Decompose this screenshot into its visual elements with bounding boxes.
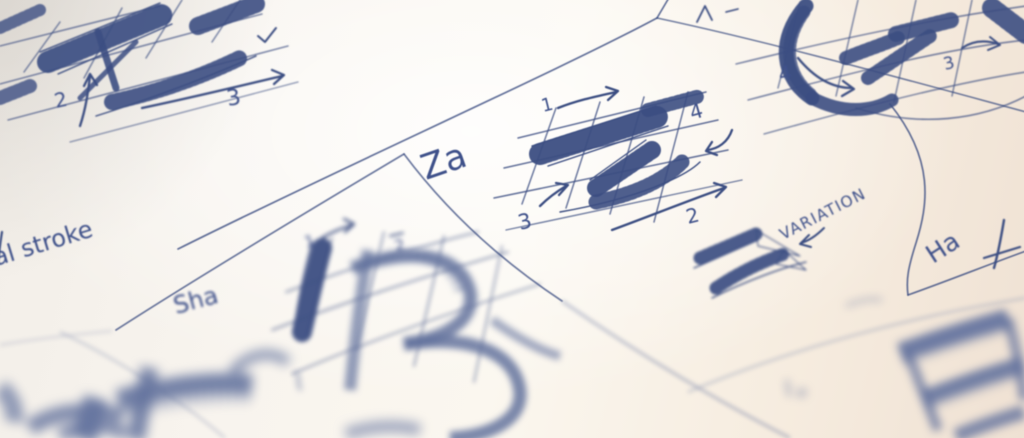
caret-mark xyxy=(697,6,712,22)
stroke-number: 2 xyxy=(683,202,701,228)
lettering-sketchbook-photo: 2 3 Za xyxy=(0,0,1024,438)
sha-panel: Sha 1 2 xyxy=(170,219,560,438)
stroke-direction-arrow-1 xyxy=(322,219,354,238)
panel-border-line xyxy=(0,331,112,345)
sha-label: Sha xyxy=(170,281,221,320)
panel-border-line xyxy=(657,18,1024,112)
panel-border-line xyxy=(890,104,925,295)
small-numeral-mark xyxy=(798,390,806,397)
stroke-direction-arrow-1 xyxy=(558,87,618,108)
top-left-letter-sketch: 2 3 xyxy=(0,0,298,142)
blurred-letter-body xyxy=(296,250,560,438)
stroke-note: al stroke xyxy=(0,215,96,272)
za-panel: Za xyxy=(416,87,742,235)
partial-letter-stroke xyxy=(984,247,1020,258)
stroke-number: 1 xyxy=(539,94,555,117)
tick-mark xyxy=(726,9,738,12)
ha-label: Ha xyxy=(920,226,964,269)
variation-label: VARIATION xyxy=(777,185,869,244)
stroke-number: 3 xyxy=(941,53,956,75)
small-numeral-mark xyxy=(296,372,301,390)
stroke-number: 2 xyxy=(52,87,69,113)
construction-grid xyxy=(494,92,742,230)
panel-border-line xyxy=(562,301,790,438)
stroke-number: 3 xyxy=(515,208,534,235)
stroke-number: 1 xyxy=(302,231,316,252)
sketch-canvas: 2 3 Za xyxy=(0,0,1024,438)
small-numeral-mark xyxy=(786,380,790,396)
foreground-blurred-sketch-right xyxy=(786,299,1024,436)
check-mark xyxy=(258,28,276,42)
stroke-number: 4 xyxy=(687,98,706,125)
hatched-letter-strokes xyxy=(0,3,256,116)
stroke-note-text: al stroke xyxy=(0,215,96,272)
panel-border-line xyxy=(908,251,1024,295)
stroke-number: 3 xyxy=(225,85,243,112)
ha-panel: Ha xyxy=(920,220,1020,269)
panel-border-line xyxy=(657,0,670,18)
variation-note: VARIATION xyxy=(777,185,869,247)
